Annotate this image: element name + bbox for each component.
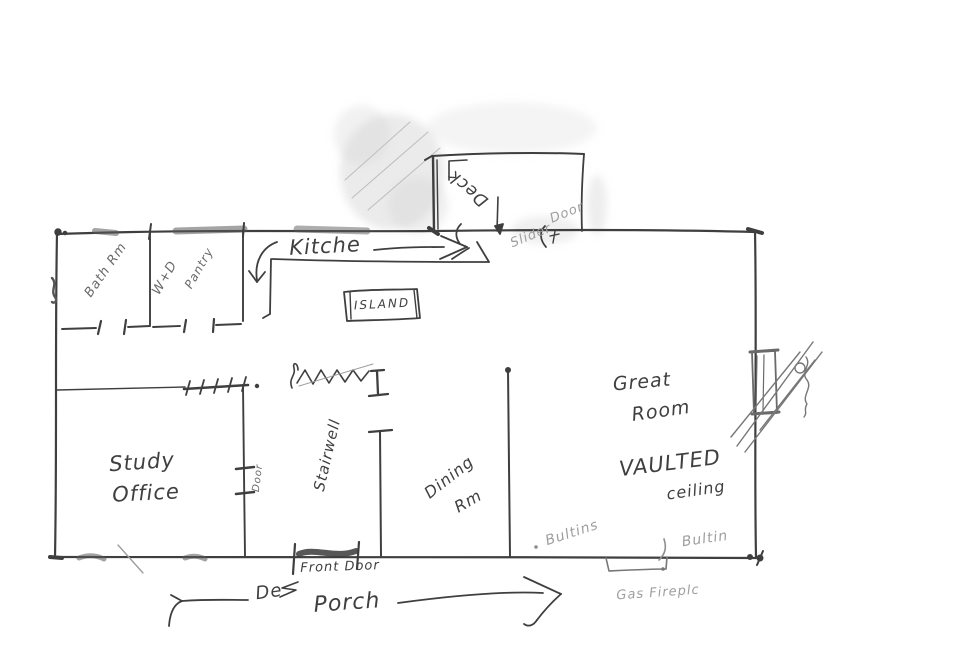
kitchen-arrow [374, 236, 469, 259]
top-wall [56, 230, 756, 234]
study-label: Study [108, 448, 175, 477]
office-label: Office [112, 479, 181, 507]
bath-pantry-partitions [52, 223, 244, 334]
front-door-label: Front Door [300, 558, 380, 576]
island-label: ISLAND [354, 296, 411, 313]
pantry-bottom-wall [153, 326, 180, 327]
study-door-tick-bottom [236, 492, 254, 494]
wall-shading-smudges [79, 229, 367, 559]
porch-label: Porch [313, 588, 381, 618]
stairwell-wall [369, 430, 392, 556]
study-walls [57, 377, 259, 573]
study-right-wall [243, 386, 245, 556]
left-wall [55, 233, 57, 557]
pencil-linework [0, 0, 960, 662]
crossed-out-door-box [731, 342, 822, 452]
bottom-wall [54, 557, 756, 558]
bath-bottom-wall [62, 328, 96, 329]
kitchen-curved-arrow [249, 242, 277, 282]
de-scribble-label: De [254, 580, 284, 605]
corner-scribble [118, 545, 143, 573]
floor-plan-sketch: Kitche ISLAND Bath Rm W+D Pantry Deck Sl… [0, 0, 960, 662]
study-door-tick-top [236, 467, 254, 469]
dining-divider-wall [505, 367, 511, 556]
kitchen-label: Kitche [289, 232, 362, 260]
stairs-zigzag [291, 364, 388, 396]
porch-right-arrow [398, 577, 561, 626]
smudge-clouds [334, 102, 607, 244]
stair-post [369, 370, 388, 396]
builtins-dot [534, 545, 538, 549]
